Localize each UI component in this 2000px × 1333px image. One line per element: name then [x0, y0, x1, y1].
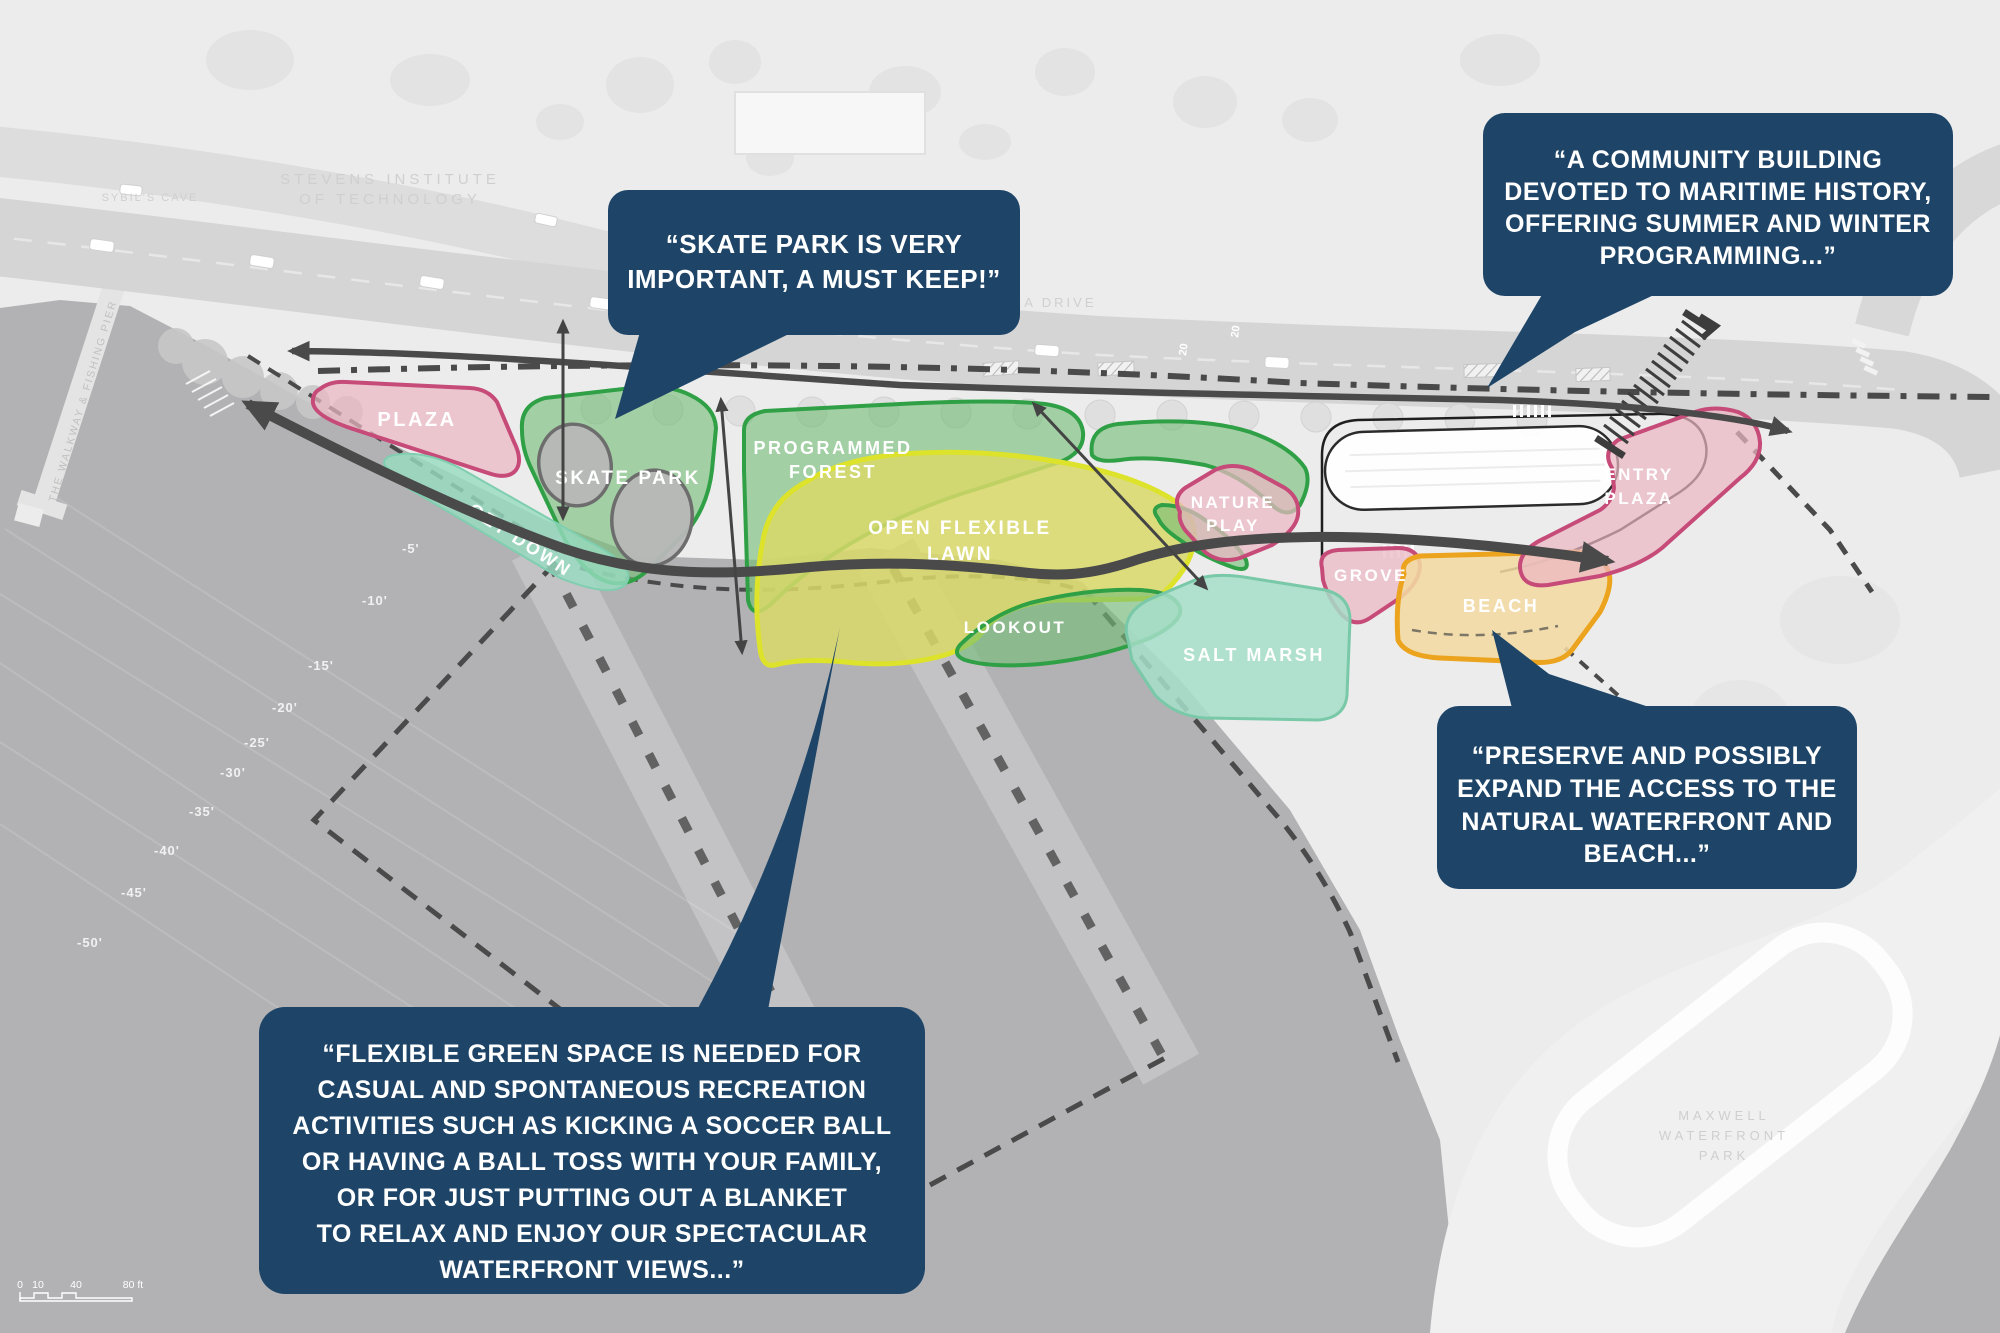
callout-text-line: ACTIVITIES SUCH AS KICKING A SOCCER BALL [292, 1112, 891, 1140]
speed-20-a: 20 [1177, 343, 1191, 357]
callout-text-line: WATERFRONT VIEWS...” [439, 1256, 744, 1284]
zone-label-nature-2: PLAY [1206, 516, 1260, 535]
callout-text-line: EXPAND THE ACCESS TO THE [1457, 775, 1837, 803]
callout-text-line: IMPORTANT, A MUST KEEP!” [627, 264, 1001, 294]
callout-text-line: OFFERING SUMMER AND WINTER [1505, 210, 1931, 238]
callout-body [608, 190, 1020, 335]
svg-text:-25': -25' [244, 735, 270, 750]
scale-40: 40 [70, 1279, 82, 1291]
zone-label-entry-1: ENTRY [1604, 465, 1674, 484]
svg-text:-45': -45' [121, 885, 147, 900]
background-building [735, 92, 925, 154]
callout-text-line: NATURAL WATERFRONT AND [1461, 808, 1832, 836]
sybils-cave-label: SYBIL'S CAVE [102, 192, 199, 204]
callout-text-line: OR HAVING A BALL TOSS WITH YOUR FAMILY, [302, 1148, 882, 1176]
svg-text:-40': -40' [154, 843, 180, 858]
park-plan-map: 20 20 STEVENS INSTITUTE OF TECHNOLOGY SY… [0, 0, 2000, 1333]
zone-label-entry-2: PLAZA [1604, 489, 1673, 508]
callout-text-line: OR FOR JUST PUTTING OUT A BLANKET [337, 1184, 847, 1212]
zone-label-forest-2: FOREST [789, 462, 877, 482]
svg-text:-35': -35' [189, 804, 215, 819]
maxwell-label-2: WATERFRONT [1659, 1128, 1789, 1143]
zone-label-forest-1: PROGRAMMED [754, 438, 913, 458]
callout-text-line: CASUAL AND SPONTANEOUS RECREATION [318, 1076, 867, 1104]
callout-text-line: BEACH...” [1584, 840, 1711, 868]
stevens-label-2: OF TECHNOLOGY [299, 191, 481, 208]
maxwell-label-1: MAXWELL [1678, 1108, 1770, 1123]
callout-text-line: TO RELAX AND ENJOY OUR SPECTACULAR [317, 1220, 868, 1248]
scale-80ft: 80 ft [123, 1279, 144, 1291]
svg-text:-15': -15' [308, 658, 334, 673]
callout-text-line: “A COMMUNITY BUILDING [1554, 146, 1883, 174]
scale-10: 10 [32, 1279, 44, 1291]
svg-text:-10': -10' [362, 593, 388, 608]
svg-text:-5': -5' [402, 541, 420, 556]
zone-label-nature-1: NATURE [1191, 493, 1276, 512]
svg-text:-20': -20' [272, 700, 298, 715]
zone-label-skate-park: SKATE PARK [555, 468, 701, 489]
callout-text-line: “PRESERVE AND POSSIBLY [1472, 742, 1822, 770]
svg-text:-30': -30' [220, 765, 246, 780]
zone-label-grove: GROVE [1334, 566, 1408, 585]
maxwell-label-3: PARK [1699, 1148, 1749, 1163]
zone-label-plaza: PLAZA [377, 409, 456, 431]
svg-text:-50': -50' [77, 935, 103, 950]
zone-label-beach: BEACH [1463, 596, 1540, 616]
scale-0: 0 [17, 1279, 23, 1291]
zone-label-salt-marsh: SALT MARSH [1183, 645, 1325, 665]
zone-label-lookout: LOOKOUT [964, 618, 1067, 637]
callout-text-line: “FLEXIBLE GREEN SPACE IS NEEDED FOR [322, 1040, 861, 1068]
stevens-label-1: STEVENS INSTITUTE [280, 171, 500, 188]
callout-text-line: PROGRAMMING...” [1600, 242, 1837, 270]
speed-20-b: 20 [1229, 325, 1243, 339]
plan-canvas: 20 20 STEVENS INSTITUTE OF TECHNOLOGY SY… [0, 0, 2000, 1333]
zone-label-lawn-1: OPEN FLEXIBLE [868, 518, 1051, 539]
callout-text-line: “SKATE PARK IS VERY [666, 229, 963, 259]
callout-text-line: DEVOTED TO MARITIME HISTORY, [1504, 178, 1931, 206]
